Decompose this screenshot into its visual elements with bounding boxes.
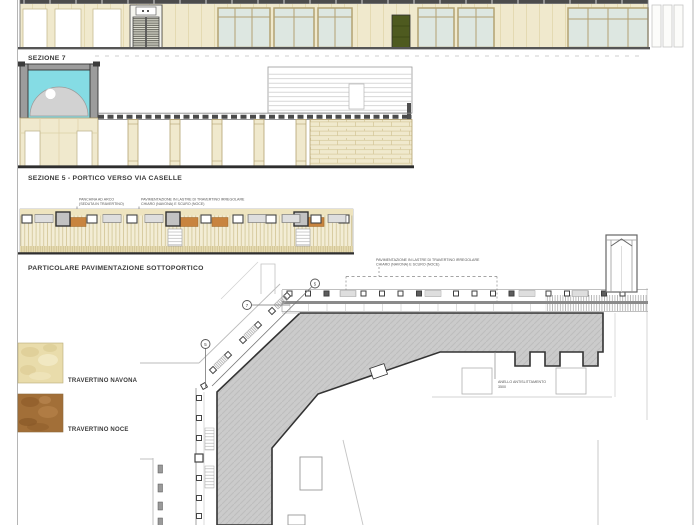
material-swatches: TRAVERTINO NAVONA TRAVERTINO NOCE bbox=[18, 343, 138, 433]
paving-annotation-line2: CHIARO (NAVONA) E SCURO (NOCE) bbox=[141, 202, 204, 206]
bench-annotation-line1: PANCHINA AD ARCO bbox=[79, 198, 114, 202]
white-panel-strips bbox=[652, 5, 683, 47]
drawing-sheet: SEZIONE 7 bbox=[0, 0, 700, 525]
svg-text:ANELLO ANTISLITTAMENTO: ANELLO ANTISLITTAMENTO bbox=[498, 380, 546, 384]
door-opening bbox=[93, 9, 121, 48]
site-plan: PAVIMENTAZIONE IN LASTRE DI TRAVERTINO I… bbox=[140, 235, 648, 525]
swatch-navona-label: TRAVERTINO NAVONA bbox=[68, 378, 138, 384]
stair-tower bbox=[606, 235, 637, 292]
door-opening bbox=[25, 131, 40, 166]
masonry-wall bbox=[310, 120, 412, 167]
sezione7-elevation bbox=[18, 0, 683, 56]
section5-label: SEZIONE 5 - PORTICO VERSO VIA CASELLE bbox=[28, 175, 182, 182]
section7-label: SEZIONE 7 bbox=[28, 55, 66, 62]
paving-annotation-line1: PAVIMENTAZIONE IN LASTRE DI TRAVERTINO I… bbox=[141, 198, 245, 202]
louvered-door bbox=[130, 5, 162, 48]
door-opening bbox=[23, 9, 47, 48]
arcade-band-left bbox=[195, 388, 214, 525]
svg-text:CHIARO (NAVONA) E SCURO (NOCE): CHIARO (NAVONA) E SCURO (NOCE) bbox=[376, 263, 439, 267]
vaulted-bay-section bbox=[18, 62, 100, 167]
courtyard-outline bbox=[300, 457, 322, 490]
building-mass bbox=[217, 313, 603, 525]
swatch-navona bbox=[18, 343, 63, 383]
door-opening bbox=[77, 131, 92, 166]
swatch-noce bbox=[18, 394, 63, 432]
paving-detail: PANCHINA AD ARCO (SEDUTA IN TRAVERTINO) … bbox=[18, 198, 354, 254]
swatch-noce-label: TRAVERTINO NOCE bbox=[68, 427, 129, 433]
light-fixture bbox=[45, 89, 56, 100]
sezione5-section bbox=[18, 62, 414, 167]
arcade-band-top bbox=[282, 290, 648, 314]
svg-text:PAVIMENTAZIONE IN LASTRE DI TR: PAVIMENTAZIONE IN LASTRE DI TRAVERTINO I… bbox=[376, 258, 480, 262]
storefront-glazing bbox=[218, 8, 648, 48]
bench-annotation-line2: (SEDUTA IN TRAVERTINO) bbox=[79, 202, 124, 206]
door-opening bbox=[55, 9, 81, 48]
svg-text:3500: 3500 bbox=[498, 385, 506, 389]
detail-label: PARTICOLARE PAVIMENTAZIONE SOTTOPORTICO bbox=[28, 265, 204, 272]
architectural-drawing: SEZIONE 7 bbox=[0, 0, 700, 525]
dimension-band bbox=[20, 0, 648, 4]
green-door bbox=[392, 15, 410, 48]
